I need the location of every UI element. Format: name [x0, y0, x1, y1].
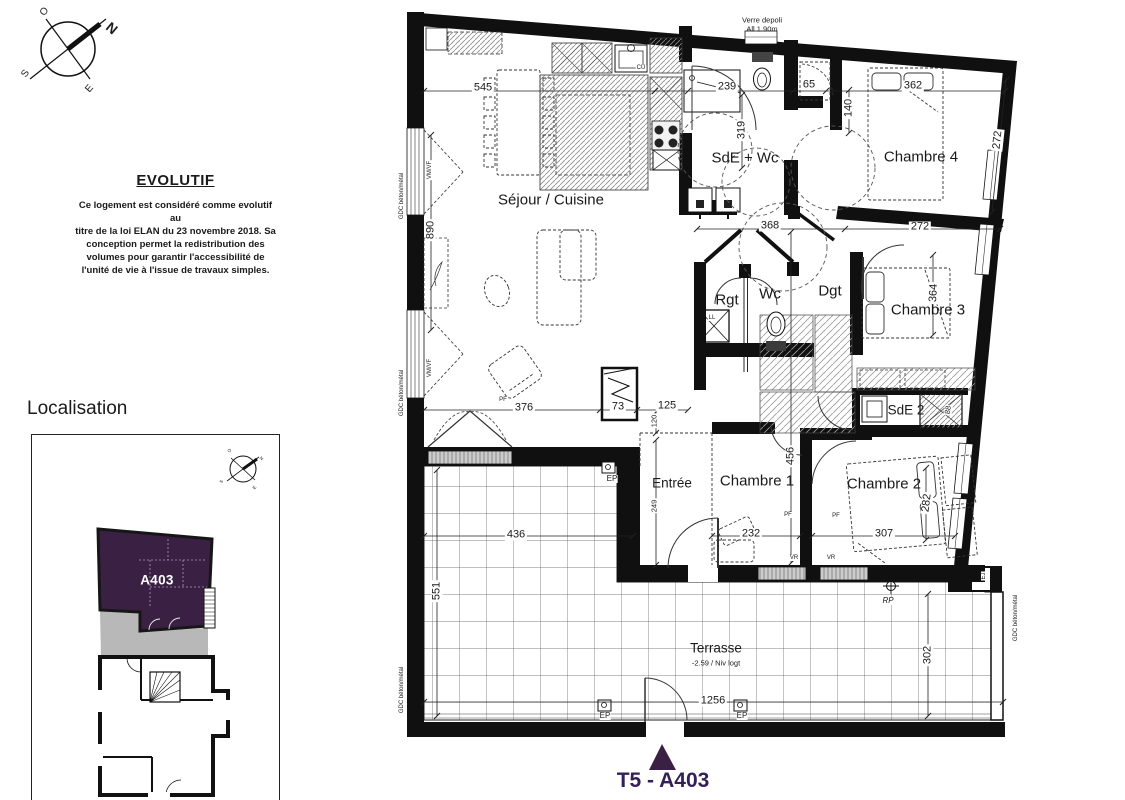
evolutif-title: EVOLUTIF — [73, 172, 278, 189]
evolutif-body-line: volumes pour garantir l'accessibilité de — [73, 251, 278, 264]
evolutif-block: EVOLUTIF Ce logement est considéré comme… — [73, 172, 278, 277]
compass-rose — [30, 19, 106, 79]
evolutif-body-line: conception permet la redistribution des — [73, 238, 278, 251]
floorplan-page: EVOLUTIF Ce logement est considéré comme… — [0, 0, 1125, 800]
evolutif-body: Ce logement est considéré comme evolutif… — [73, 199, 278, 277]
evolutif-body-line: l'unité de vie à l'issue de travaux simp… — [73, 264, 278, 277]
terrace-floor — [424, 466, 1003, 720]
pillows — [866, 73, 940, 539]
localisation-title: Localisation — [27, 398, 127, 420]
t5-marker-triangle — [649, 744, 676, 770]
evolutif-body-line: Ce logement est considéré comme evolutif… — [73, 199, 278, 225]
localisation-box — [31, 434, 280, 800]
unit-title: T5 - A403 — [617, 769, 710, 793]
unit-label-minimap: A403 — [140, 573, 173, 588]
evolutif-body-line: titre de la loi ELAN du 23 novembre 2018… — [73, 225, 278, 238]
